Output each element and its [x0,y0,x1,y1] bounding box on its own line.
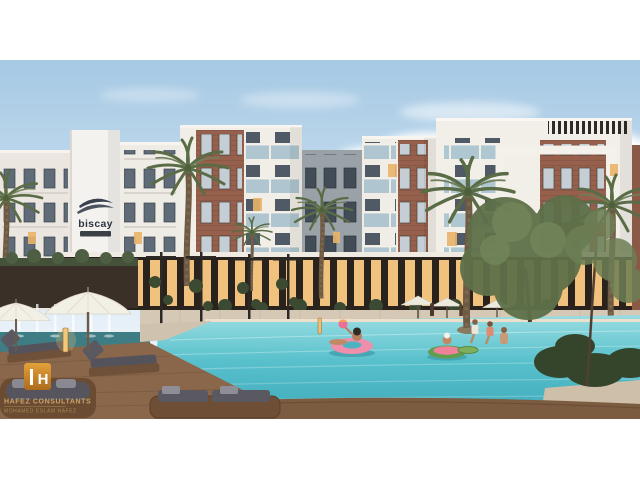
watermark-monogram: H [38,371,49,388]
roof-pergola-slats [548,120,630,134]
watermark-rule [4,406,66,407]
person-torso [472,325,479,334]
swimmer-hair [353,328,361,336]
watermark-rule [4,415,66,416]
watermark-line1: HAFEZ CONSULTANTS [4,399,91,406]
person-head [472,319,478,325]
architectural-render: biscay [0,0,640,480]
logo-tagline-bar [80,231,111,237]
parapet [436,118,632,121]
logo-name: biscay [78,218,113,230]
daybed-pillow [56,379,76,388]
person-torso [500,333,508,344]
lamp-bollard [56,328,76,352]
cloud [240,92,360,108]
cloud [100,88,200,102]
swimmer-legs [329,339,347,345]
parapet [120,142,180,145]
letterbox-top [0,0,640,60]
monogram-bar-icon [30,369,33,385]
floater-cap [444,333,450,339]
green-ring-float [458,347,478,354]
person-head [501,327,507,333]
person-torso [487,327,494,336]
letterbox-bottom [0,419,640,480]
parapet [0,150,70,153]
watermark-line2: MOHAMED ESLAM HAFEZ [4,409,77,415]
lamp-body [63,328,68,352]
person-head [487,321,493,327]
wicker-daybed [150,386,280,418]
lamp-bollard-small [318,318,322,334]
watermelon-float-top [434,346,461,354]
render-canvas: biscay [0,0,640,480]
parapet [180,125,302,128]
pool-coping [205,319,640,322]
